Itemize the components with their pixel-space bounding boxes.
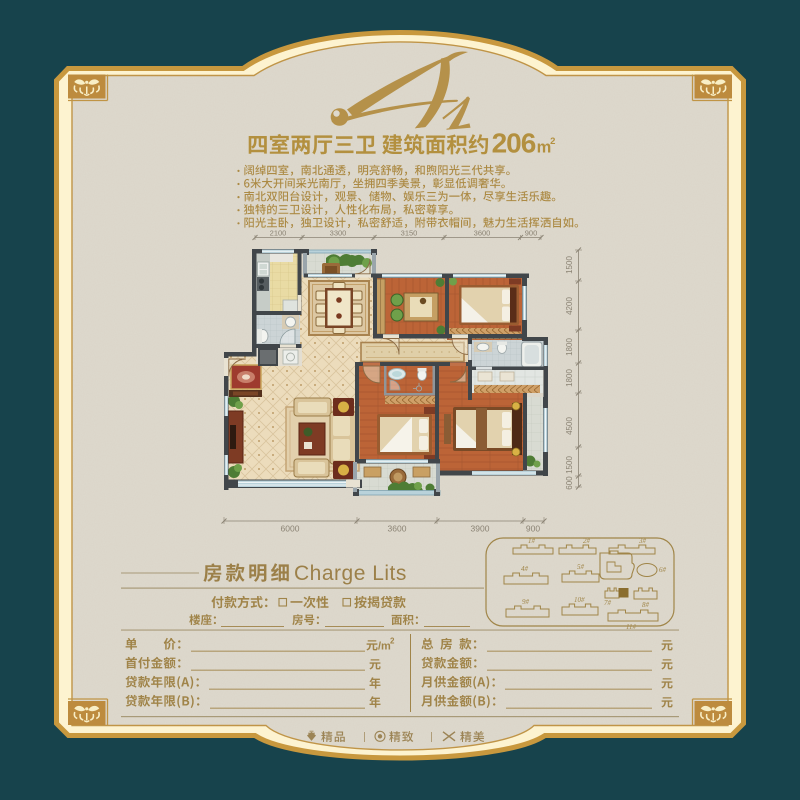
svg-text:6#: 6# xyxy=(659,566,667,574)
svg-text:2100: 2100 xyxy=(270,229,287,238)
svg-text:1#: 1# xyxy=(528,537,536,545)
svg-text:206: 206 xyxy=(492,128,536,159)
svg-text:2: 2 xyxy=(550,136,555,147)
svg-text:1500: 1500 xyxy=(565,256,574,274)
svg-text:m: m xyxy=(537,139,552,157)
svg-text:3300: 3300 xyxy=(330,229,347,238)
svg-text:900: 900 xyxy=(526,524,540,534)
svg-text:1800: 1800 xyxy=(565,369,574,387)
svg-text:3150: 3150 xyxy=(401,229,418,238)
svg-text:5#: 5# xyxy=(577,563,585,571)
svg-text:3600: 3600 xyxy=(474,229,491,238)
svg-text:9#: 9# xyxy=(522,598,530,606)
svg-text:1500: 1500 xyxy=(565,456,574,474)
svg-text:4#: 4# xyxy=(521,565,529,573)
svg-text:4200: 4200 xyxy=(565,297,574,315)
svg-text:1800: 1800 xyxy=(565,338,574,356)
svg-text:3#: 3# xyxy=(638,537,647,545)
svg-text:2#: 2# xyxy=(583,537,591,545)
svg-text:2: 2 xyxy=(390,637,395,646)
svg-text:8#: 8# xyxy=(642,601,650,609)
svg-text:10#: 10# xyxy=(574,596,585,604)
svg-text:6000: 6000 xyxy=(281,524,300,534)
svg-text:3600: 3600 xyxy=(388,524,407,534)
svg-text:600: 600 xyxy=(565,476,574,490)
svg-text:900: 900 xyxy=(525,229,538,238)
svg-text:7#: 7# xyxy=(604,599,612,607)
svg-text:4500: 4500 xyxy=(565,417,574,435)
svg-text:3900: 3900 xyxy=(471,524,490,534)
svg-text:11#: 11# xyxy=(626,623,636,631)
svg-text:Charge Lits: Charge Lits xyxy=(294,562,407,585)
